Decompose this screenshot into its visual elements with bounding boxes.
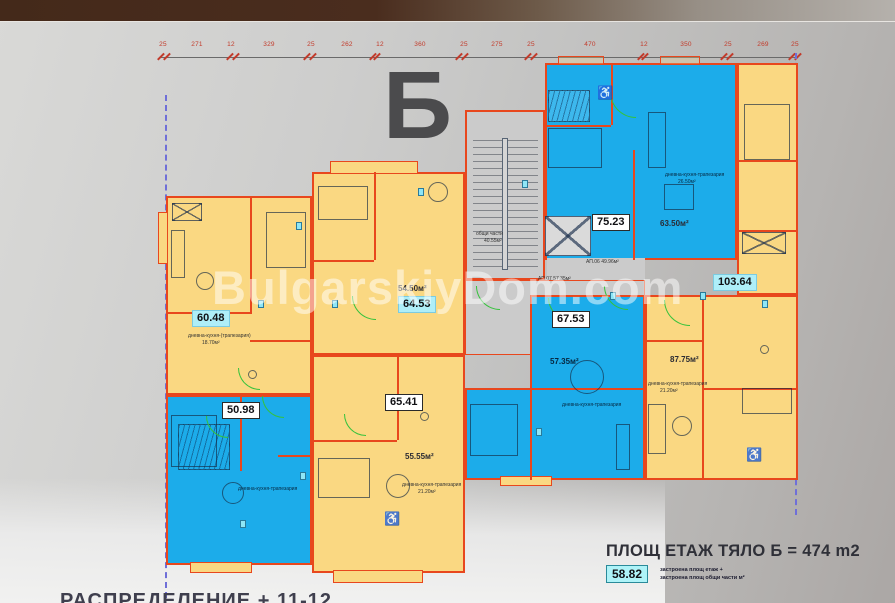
wardrobe-furniture bbox=[742, 232, 786, 254]
sofa-furniture bbox=[616, 424, 630, 470]
bed-furniture bbox=[318, 458, 370, 498]
watermark: BulgarskiyDom.com bbox=[212, 260, 683, 315]
floorplan-page: 2527112329252621236025275254701235025269… bbox=[0, 0, 895, 603]
sofa-furniture bbox=[648, 404, 666, 454]
wall bbox=[645, 340, 702, 342]
dimension-value: 262 bbox=[341, 41, 352, 48]
balcony bbox=[333, 570, 423, 583]
wall bbox=[312, 440, 397, 442]
room-caption: дневна-кухня-трапезария bbox=[665, 172, 724, 179]
dimension-value: 25 bbox=[724, 41, 732, 48]
dimension-line bbox=[160, 57, 797, 58]
dimension-value: 25 bbox=[791, 41, 799, 48]
built-up-note-line1: застроена площ етаж + bbox=[660, 566, 745, 574]
net-area-63-50: 63.50м² bbox=[660, 219, 689, 228]
bed-furniture bbox=[742, 388, 792, 414]
dimension-value: 350 bbox=[680, 41, 691, 48]
dimension-value: 329 bbox=[263, 41, 274, 48]
door-marker bbox=[418, 188, 424, 196]
dimension-value: 12 bbox=[640, 41, 648, 48]
toilet-fixture bbox=[760, 345, 769, 354]
built-up-note-line2: застроена площ общи части м² bbox=[660, 574, 745, 582]
dimension-value: 12 bbox=[227, 41, 235, 48]
net-area-55-55: 55.55м² bbox=[405, 452, 434, 461]
room-caption: дневна-кухня-трапезария bbox=[402, 482, 461, 489]
door-marker bbox=[700, 292, 706, 300]
dimension-value: 25 bbox=[159, 41, 167, 48]
door-marker bbox=[300, 472, 306, 480]
built-up-value-badge: 58.82 bbox=[606, 565, 648, 583]
top-brown-banner bbox=[0, 0, 895, 22]
wall bbox=[737, 160, 798, 162]
built-up-note: застроена площ етаж + застроена площ общ… bbox=[660, 566, 745, 583]
dimension-value: 275 bbox=[491, 41, 502, 48]
common-parts-label: общи части bbox=[476, 231, 503, 238]
wall bbox=[278, 455, 312, 457]
room-caption: дневна-кухня-(трапезария) bbox=[188, 333, 251, 340]
door-marker bbox=[522, 180, 528, 188]
bed-furniture bbox=[548, 128, 602, 168]
wall bbox=[374, 172, 376, 260]
apartment-103-64-upper bbox=[737, 63, 798, 295]
stairs-divider bbox=[502, 138, 508, 270]
wheelchair-icon: ♿ bbox=[597, 86, 613, 99]
room-caption: дневна-кухня-трапезария bbox=[648, 381, 707, 388]
room-area: 21.20м² bbox=[660, 388, 678, 395]
sofa-furniture bbox=[648, 112, 666, 168]
dimension-value: 360 bbox=[414, 41, 425, 48]
dimension-value: 271 bbox=[191, 41, 202, 48]
door-marker bbox=[536, 428, 542, 436]
bed-furniture bbox=[744, 104, 790, 160]
dimension-value: 269 bbox=[757, 41, 768, 48]
section-letter: Б bbox=[383, 58, 452, 154]
dimension-value: 470 bbox=[584, 41, 595, 48]
balcony-outline bbox=[558, 56, 604, 65]
wall bbox=[530, 388, 532, 480]
net-area-87-75: 87.75м² bbox=[670, 355, 699, 364]
bed-furniture bbox=[318, 186, 368, 220]
wall bbox=[633, 150, 635, 260]
wall bbox=[545, 125, 611, 127]
table-furniture bbox=[664, 184, 694, 210]
wheelchair-icon: ♿ bbox=[384, 512, 400, 525]
wardrobe-furniture bbox=[172, 203, 202, 221]
table-furniture bbox=[428, 182, 448, 202]
net-area-57-35: 57.35м² bbox=[550, 357, 579, 366]
room-area: 26.50м² bbox=[678, 179, 696, 186]
area-label-75-23: 75.23 bbox=[592, 214, 630, 231]
area-label-50-98: 50.98 bbox=[222, 402, 260, 419]
distribution-caption: РАСПРЕДЕЛЕНИЕ + 11-12 bbox=[60, 590, 332, 603]
toilet-fixture bbox=[420, 412, 429, 421]
bed-furniture bbox=[470, 404, 518, 456]
dimension-value: 25 bbox=[460, 41, 468, 48]
dimension-value: 25 bbox=[527, 41, 535, 48]
wheelchair-icon: ♿ bbox=[746, 448, 762, 461]
room-caption: дневна-кухня-трапезария bbox=[238, 486, 297, 493]
balcony bbox=[158, 212, 168, 264]
stairs-flight-left bbox=[473, 140, 503, 268]
wall bbox=[250, 340, 312, 342]
room-area: 21.20м² bbox=[418, 489, 436, 496]
balcony bbox=[190, 562, 252, 573]
dimension-value: 12 bbox=[376, 41, 384, 48]
door-marker bbox=[762, 300, 768, 308]
area-label-65-41: 65.41 bbox=[385, 394, 423, 411]
elevator-shaft bbox=[545, 216, 591, 256]
common-parts-area: 40.55м² bbox=[484, 238, 502, 245]
table-furniture bbox=[672, 416, 692, 436]
room-area: 18.70м² bbox=[202, 340, 220, 347]
balcony bbox=[500, 476, 552, 486]
sofa-furniture bbox=[171, 230, 185, 278]
area-label-103-64: 103.64 bbox=[713, 274, 757, 291]
balcony-outline bbox=[660, 56, 700, 65]
stairs-flight-right bbox=[508, 140, 538, 268]
room-caption: дневна-кухня-трапезария bbox=[562, 402, 621, 409]
dimension-value: 25 bbox=[307, 41, 315, 48]
door-marker bbox=[296, 222, 302, 230]
closet-furniture bbox=[548, 90, 590, 122]
floor-area-text: ПЛОЩ ЕТАЖ ТЯЛО Б = 474 m2 bbox=[606, 542, 860, 561]
door-marker bbox=[240, 520, 246, 528]
